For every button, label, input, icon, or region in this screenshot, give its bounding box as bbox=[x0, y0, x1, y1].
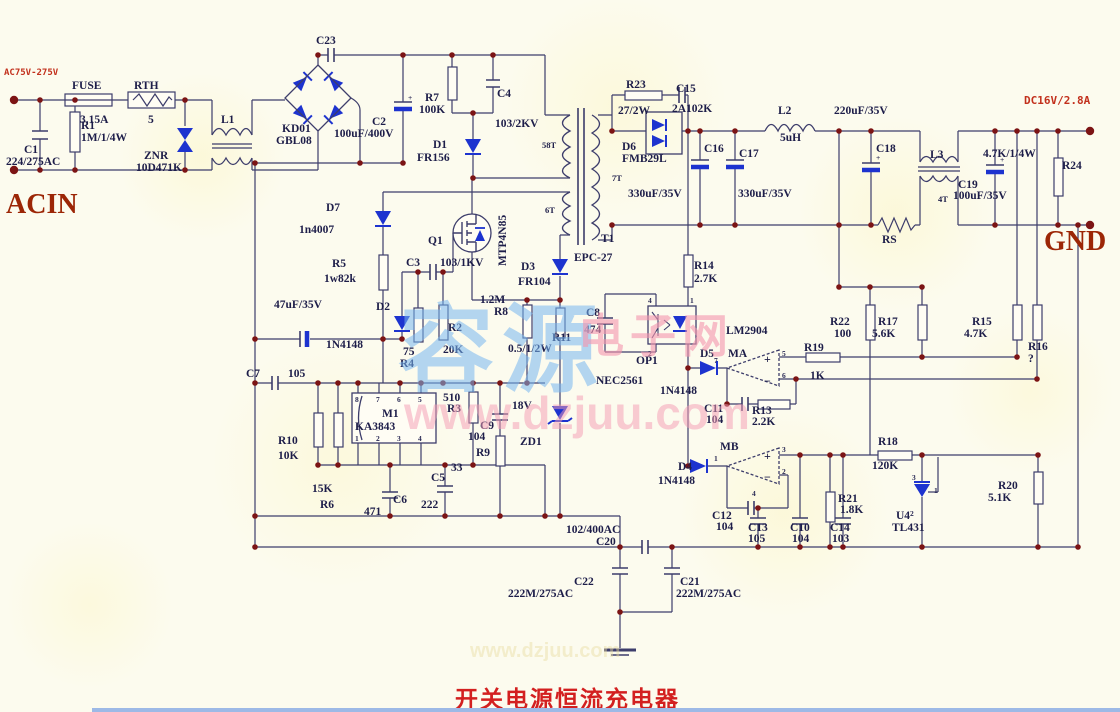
label-gbl08-17: GBL08 bbox=[276, 135, 312, 147]
label-1n4148-32: 1N4148 bbox=[326, 339, 363, 351]
choke-l1 bbox=[212, 129, 252, 165]
junction-dot bbox=[387, 462, 393, 468]
label-7t-49: 7T bbox=[612, 173, 622, 183]
label-lm2904-108: LM2904 bbox=[726, 325, 768, 337]
label-4-157: 4 bbox=[648, 296, 652, 305]
label-c17-86: C17 bbox=[739, 148, 759, 160]
bridge-diode-3 bbox=[293, 105, 312, 124]
bridge-rectifier-kd01 bbox=[285, 65, 351, 131]
label-d5-105: D5 bbox=[700, 348, 714, 360]
junction-dot bbox=[470, 175, 476, 181]
label-ma-107: MA bbox=[728, 348, 748, 360]
inductor-l2 bbox=[765, 125, 815, 132]
label-r23-78: R23 bbox=[626, 79, 646, 91]
junction-dot bbox=[182, 97, 188, 103]
label-1-155: 1 bbox=[714, 454, 718, 463]
resistor-r10 bbox=[314, 413, 323, 447]
junction-dot bbox=[315, 52, 321, 58]
junction-dot bbox=[609, 222, 615, 228]
junction-dot bbox=[697, 222, 703, 228]
label-r2-39: R2 bbox=[448, 322, 462, 334]
resistor-r21 bbox=[826, 492, 835, 522]
label---165: + bbox=[1000, 155, 1004, 164]
label-ac75v-275v-0: AC75V-275V bbox=[4, 68, 59, 78]
junction-dot bbox=[827, 452, 833, 458]
junction-dot bbox=[755, 544, 761, 550]
cap-c3 bbox=[430, 264, 436, 280]
junction-dot bbox=[1034, 376, 1040, 382]
junction-dot bbox=[919, 284, 925, 290]
resistor-r15 bbox=[1013, 305, 1022, 340]
junction-dot bbox=[524, 297, 530, 303]
label-330uf-35v-87: 330uF/35V bbox=[738, 188, 792, 200]
label-5-6k-114: 5.6K bbox=[872, 328, 895, 340]
label-r10-54: R10 bbox=[278, 435, 298, 447]
transformer-t1-secondary-winding bbox=[592, 115, 600, 240]
label-1w82k-29: 1w82k bbox=[324, 273, 357, 285]
label-58t-47: 58T bbox=[542, 140, 557, 150]
transformer-t1-primary-winding bbox=[563, 115, 571, 178]
terminal-dot bbox=[1086, 127, 1094, 135]
label-5-150: 5 bbox=[782, 349, 786, 358]
label-104-127: 104 bbox=[716, 521, 734, 533]
label-r11-43: R11 bbox=[552, 332, 571, 344]
label-znr-12: ZNR bbox=[144, 150, 169, 162]
label-rs-98: RS bbox=[882, 234, 897, 246]
label-r1-10: R1 bbox=[81, 120, 95, 132]
label-kd01-16: KD01 bbox=[282, 123, 311, 135]
junction-dot bbox=[1035, 544, 1041, 550]
label-d6-82: D6 bbox=[622, 141, 636, 153]
junction-dot bbox=[315, 380, 321, 386]
junction-dot bbox=[524, 380, 530, 386]
label-d4-124: D4 bbox=[678, 461, 692, 473]
label-dc16v-2-8a-3: DC16V/2.8A bbox=[1024, 94, 1091, 107]
label-1n4148-106: 1N4148 bbox=[660, 385, 697, 397]
label-3-160: 3 bbox=[912, 473, 916, 482]
junction-dot bbox=[836, 128, 842, 134]
optocoupler-led bbox=[673, 316, 687, 331]
diode-d1 bbox=[465, 139, 481, 154]
label-4-156: 4 bbox=[752, 489, 756, 498]
label-r7-20: R7 bbox=[425, 92, 439, 104]
junction-dot bbox=[252, 380, 258, 386]
label-8-142: 8 bbox=[355, 395, 359, 404]
label-3-148: 3 bbox=[397, 434, 401, 443]
junction-dot bbox=[542, 513, 548, 519]
label-222m-275ac-77: 222M/275AC bbox=[676, 588, 741, 600]
label-105-133: 105 bbox=[748, 533, 766, 545]
label-5-1k-141: 5.1K bbox=[988, 492, 1011, 504]
label-1n4148-125: 1N4148 bbox=[658, 475, 695, 487]
resistor-r9 bbox=[496, 436, 505, 466]
label-fuse-4: FUSE bbox=[72, 80, 102, 92]
label-c2-18: C2 bbox=[372, 116, 386, 128]
junction-dot bbox=[400, 52, 406, 58]
label-6-144: 6 bbox=[397, 395, 401, 404]
label-104-67: 104 bbox=[468, 431, 486, 443]
label-l2-88: L2 bbox=[778, 105, 792, 117]
junction-dot bbox=[617, 609, 623, 615]
label---168: + bbox=[764, 449, 771, 463]
label-100uf-35v-95: 100uF/35V bbox=[953, 190, 1007, 202]
label-epc-27-51: EPC-27 bbox=[574, 252, 613, 264]
label-10k-55: 10K bbox=[278, 450, 299, 462]
label-75-41: 75 bbox=[403, 346, 415, 358]
cap-c1 bbox=[32, 131, 48, 139]
label-u4-138: U4 bbox=[896, 510, 910, 522]
label-c23-15: C23 bbox=[316, 35, 336, 47]
label-c6-60: C6 bbox=[393, 494, 407, 506]
label-c1-8: C1 bbox=[24, 144, 38, 156]
junction-dot bbox=[442, 462, 448, 468]
cap-c7 bbox=[272, 376, 278, 390]
junction-dot bbox=[415, 269, 421, 275]
label-r9-68: R9 bbox=[476, 447, 490, 459]
label-5-7: 5 bbox=[148, 114, 154, 126]
junction-dot bbox=[1075, 544, 1081, 550]
label-3-153: 3 bbox=[782, 445, 786, 454]
label-4-7k-1-4w-96: 4.7K/1/4W bbox=[983, 148, 1036, 160]
label-r14-99: R14 bbox=[694, 260, 714, 272]
cap-c4 bbox=[486, 80, 500, 87]
label-2a102k-81: 2A102K bbox=[672, 103, 712, 115]
junction-dot bbox=[400, 160, 406, 166]
label-t1-50: T1 bbox=[601, 233, 615, 245]
label-r17-113: R17 bbox=[878, 316, 898, 328]
junction-dot bbox=[252, 544, 258, 550]
junction-dot bbox=[868, 222, 874, 228]
label-acin-1: ACIN bbox=[6, 189, 78, 220]
label-2-7k-100: 2.7K bbox=[694, 273, 717, 285]
label-c22-74: C22 bbox=[574, 576, 594, 588]
diode-d3 bbox=[552, 259, 568, 274]
junction-dot bbox=[440, 269, 446, 275]
label-0-5-1-2w-44: 0.5/1/2W bbox=[508, 343, 552, 355]
junction-dot bbox=[840, 544, 846, 550]
cap-c21 bbox=[664, 568, 680, 574]
label-d7-26: D7 bbox=[326, 202, 340, 214]
junction-dot bbox=[836, 222, 842, 228]
junction-dot bbox=[1034, 128, 1040, 134]
junction-dot bbox=[355, 380, 361, 386]
label-r18-128: R18 bbox=[878, 436, 898, 448]
junction-dot bbox=[685, 128, 691, 134]
resistor-r7 bbox=[448, 67, 457, 100]
label-222-63: 222 bbox=[421, 499, 439, 511]
label-zd1-71: ZD1 bbox=[520, 436, 542, 448]
label-1n4007-27: 1n4007 bbox=[299, 224, 334, 236]
bridge-diode-2 bbox=[324, 72, 343, 91]
junction-dot bbox=[497, 513, 503, 519]
component-labels: AC75V-275VACINGNDDC16V/2.8AFUSE3.15ARTH5… bbox=[4, 35, 1106, 600]
label-6-151: 6 bbox=[782, 371, 786, 380]
rectifier-d6-box bbox=[646, 112, 682, 154]
junction-dot bbox=[252, 160, 258, 166]
resistor-r20 bbox=[1034, 472, 1043, 504]
label-fmb29l-83: FMB29L bbox=[622, 153, 667, 165]
resistor-r17 bbox=[918, 305, 927, 340]
label-103-137: 103 bbox=[832, 533, 850, 545]
junction-dot bbox=[732, 128, 738, 134]
label-100uf-400v-19: 100uF/400V bbox=[334, 128, 394, 140]
label-q1-35: Q1 bbox=[428, 235, 443, 247]
diode-d4 bbox=[690, 459, 707, 473]
junction-dot bbox=[557, 513, 563, 519]
label-105-53: 105 bbox=[288, 368, 306, 380]
label-222m-275ac-75: 222M/275AC bbox=[508, 588, 573, 600]
label-100k-21: 100K bbox=[419, 104, 445, 116]
label-104-135: 104 bbox=[792, 533, 810, 545]
label-7-152: 7 bbox=[714, 356, 718, 365]
junction-dot bbox=[797, 452, 803, 458]
junction-dot bbox=[755, 505, 761, 511]
junction-dot bbox=[335, 462, 341, 468]
transformer-t1-core bbox=[578, 108, 584, 245]
label-op1-103: OP1 bbox=[636, 355, 658, 367]
label-15k-56: 15K bbox=[312, 483, 333, 495]
label-2-154: 2 bbox=[782, 467, 786, 476]
junction-dot bbox=[557, 297, 563, 303]
label-m1-58: M1 bbox=[382, 408, 399, 420]
label-102-400ac-72: 102/400AC bbox=[566, 524, 620, 536]
label-1m-1-4w-11: 1M/1/4W bbox=[81, 132, 127, 144]
tl431-u4-symbol bbox=[914, 482, 930, 497]
junction-dot bbox=[732, 222, 738, 228]
junction-dot bbox=[72, 97, 78, 103]
label-18v-70: 18V bbox=[512, 400, 533, 412]
junction-dot bbox=[685, 365, 691, 371]
label-r19-109: R19 bbox=[804, 342, 824, 354]
resistor-r23 bbox=[625, 91, 662, 100]
label-104-120: 104 bbox=[706, 414, 724, 426]
label-20k-40: 20K bbox=[443, 344, 464, 356]
resistor-r6 bbox=[334, 413, 343, 447]
junction-dot bbox=[470, 380, 476, 386]
junction-dot bbox=[315, 462, 321, 468]
label-5uh-89: 5uH bbox=[780, 132, 801, 144]
junction-dot bbox=[992, 222, 998, 228]
label-2-162: 2 bbox=[910, 509, 914, 518]
label-l1-14: L1 bbox=[221, 114, 235, 126]
label-l3-92: L3 bbox=[930, 149, 944, 161]
label-c16-84: C16 bbox=[704, 143, 724, 155]
resistor-r19 bbox=[806, 353, 840, 362]
label-r6-57: R6 bbox=[320, 499, 334, 511]
label---166: + bbox=[764, 352, 771, 366]
junction-dot bbox=[37, 97, 43, 103]
resistor-r8 bbox=[523, 305, 532, 338]
label-r15-115: R15 bbox=[972, 316, 992, 328]
junction-dot bbox=[840, 452, 846, 458]
cap-c23 bbox=[328, 48, 334, 62]
junction-dot bbox=[992, 128, 998, 134]
label---164: + bbox=[876, 153, 880, 162]
label-330uf-35v-85: 330uF/35V bbox=[628, 188, 682, 200]
label-4-149: 4 bbox=[418, 434, 422, 443]
junction-dot bbox=[442, 513, 448, 519]
cap-c12 bbox=[748, 501, 754, 515]
label-mtp4n85-36: MTP4N85 bbox=[497, 215, 509, 266]
junction-dot bbox=[449, 52, 455, 58]
junction-dot bbox=[357, 160, 363, 166]
resistor-r2 bbox=[439, 305, 448, 340]
label-c5-62: C5 bbox=[431, 472, 445, 484]
junction-dot bbox=[252, 513, 258, 519]
label-gnd-2: GND bbox=[1044, 226, 1106, 257]
cap-c11 bbox=[742, 397, 748, 411]
junction-dot bbox=[868, 128, 874, 134]
junction-dot bbox=[72, 167, 78, 173]
junction-dot bbox=[380, 336, 386, 342]
junction-dot bbox=[1014, 128, 1020, 134]
label-d1-24: D1 bbox=[433, 139, 447, 151]
label-ka3843-59: KA3843 bbox=[355, 421, 396, 433]
label-1-146: 1 bbox=[355, 434, 359, 443]
label-r3-65: R3 bbox=[447, 403, 461, 415]
junction-dot bbox=[827, 544, 833, 550]
junction-dot bbox=[1014, 354, 1020, 360]
diode-d7 bbox=[375, 211, 391, 226]
resistor-r3 bbox=[469, 392, 478, 423]
opamp-mb-triangle bbox=[727, 448, 779, 484]
label-c20-73: C20 bbox=[596, 536, 616, 548]
junction-dot bbox=[1055, 128, 1061, 134]
resistor-r4 bbox=[414, 308, 423, 342]
junction-dot bbox=[697, 128, 703, 134]
rectifier-d6-diode-a bbox=[652, 119, 666, 131]
label-1-158: 1 bbox=[690, 296, 694, 305]
label-d3-45: D3 bbox=[521, 261, 535, 273]
junction-dot bbox=[470, 110, 476, 116]
optocoupler-op1-transistor bbox=[652, 312, 670, 338]
label-fr156-25: FR156 bbox=[417, 152, 450, 164]
rectifier-d6-diode-b bbox=[652, 135, 666, 147]
earth-ground-symbol bbox=[604, 650, 636, 655]
junction-dot bbox=[37, 167, 43, 173]
resistor-r18 bbox=[878, 451, 912, 460]
terminal-dot bbox=[10, 96, 18, 104]
label-r16-117: R16 bbox=[1028, 341, 1048, 353]
label-c3-33: C3 bbox=[406, 257, 420, 269]
schematic-canvas: AC75V-275VACINGNDDC16V/2.8AFUSE3.15ARTH5… bbox=[0, 0, 1120, 712]
label-33-69: 33 bbox=[451, 462, 463, 474]
label---163: + bbox=[408, 93, 412, 102]
label-c15-80: C15 bbox=[676, 83, 696, 95]
junction-dot bbox=[440, 380, 446, 386]
resistor-r14 bbox=[684, 255, 693, 287]
junction-dot bbox=[797, 544, 803, 550]
label-c7-52: C7 bbox=[246, 368, 260, 380]
label-r5-28: R5 bbox=[332, 258, 346, 270]
label-120k-129: 120K bbox=[872, 460, 898, 472]
label-220uf-35v-90: 220uF/35V bbox=[834, 105, 888, 117]
junction-dot bbox=[1035, 452, 1041, 458]
label-r20-140: R20 bbox=[998, 480, 1018, 492]
label-27-2w-79: 27/2W bbox=[618, 105, 650, 117]
resistor-r5 bbox=[379, 255, 388, 290]
label-4-7k-116: 4.7K bbox=[964, 328, 987, 340]
cap-c22 bbox=[612, 568, 628, 574]
label-2-147: 2 bbox=[376, 434, 380, 443]
junction-dot bbox=[919, 354, 925, 360]
label-1-8k-131: 1.8K bbox=[840, 504, 863, 516]
label-6t-48: 6T bbox=[545, 205, 555, 215]
junction-dot bbox=[335, 380, 341, 386]
label-nec2561-104: NEC2561 bbox=[596, 375, 644, 387]
varistor-znr bbox=[177, 128, 193, 152]
label-c21-76: C21 bbox=[680, 576, 700, 588]
junction-dot bbox=[418, 380, 424, 386]
label-2-2k-122: 2.2K bbox=[752, 416, 775, 428]
junction-dot bbox=[387, 513, 393, 519]
sense-resistor-rs bbox=[878, 218, 915, 232]
label-1-161: 1 bbox=[934, 486, 938, 495]
label-1k-110: 1K bbox=[810, 370, 825, 382]
diode-d2 bbox=[394, 316, 410, 331]
label---169: − bbox=[764, 470, 771, 484]
label-471-61: 471 bbox=[364, 506, 382, 518]
label-7-143: 7 bbox=[376, 395, 380, 404]
label-103-1kv-34: 103/1KV bbox=[440, 257, 484, 269]
label-103-2kv-23: 103/2KV bbox=[495, 118, 539, 130]
label-r24-97: R24 bbox=[1062, 160, 1082, 172]
label-474-102: 474 bbox=[584, 324, 602, 336]
label-r4-42: R4 bbox=[400, 358, 414, 370]
resistor-r16 bbox=[1033, 305, 1042, 340]
cap-c5 bbox=[437, 486, 453, 492]
label-r22-111: R22 bbox=[830, 316, 850, 328]
label-r8-38: R8 bbox=[494, 306, 508, 318]
label-47uf-35v-30: 47uF/35V bbox=[274, 299, 323, 311]
junction-dot bbox=[470, 462, 476, 468]
junction-dot bbox=[919, 452, 925, 458]
junction-dot bbox=[836, 284, 842, 290]
label-c8-101: C8 bbox=[586, 307, 600, 319]
label-tl431-139: TL431 bbox=[892, 522, 925, 534]
junction-dot bbox=[497, 380, 503, 386]
bottom-edge-strip bbox=[92, 708, 1120, 712]
schematic-page: AC75V-275VACINGNDDC16V/2.8AFUSE3.15ARTH5… bbox=[0, 0, 1120, 712]
cap-c20 bbox=[642, 540, 648, 554]
junction-dot bbox=[490, 52, 496, 58]
junction-dot bbox=[867, 284, 873, 290]
label-rth-6: RTH bbox=[134, 80, 159, 92]
junction-dot bbox=[919, 544, 925, 550]
label-4t-93: 4T bbox=[938, 194, 948, 204]
junction-dot bbox=[617, 544, 623, 550]
label---167: − bbox=[764, 374, 771, 388]
transformer-t1-aux-winding bbox=[563, 192, 571, 235]
junction-dot bbox=[609, 128, 615, 134]
junction-dot bbox=[793, 376, 799, 382]
label-mb-123: MB bbox=[720, 441, 739, 453]
label-10d471k-13: 10D471K bbox=[136, 162, 182, 174]
label-2-159: 2 bbox=[648, 349, 652, 358]
resistor-r1 bbox=[70, 112, 80, 152]
junction-dot bbox=[252, 336, 258, 342]
label-1-2m-37: 1.2M bbox=[480, 294, 505, 306]
junction-dot bbox=[399, 336, 405, 342]
cap-c9 bbox=[492, 414, 508, 420]
junction-dot bbox=[397, 380, 403, 386]
label---118: ? bbox=[1028, 353, 1034, 365]
label-fr104-46: FR104 bbox=[518, 276, 551, 288]
junction-dot bbox=[724, 401, 730, 407]
label-224-275ac-9: 224/275AC bbox=[6, 156, 60, 168]
label-d2-31: D2 bbox=[376, 301, 390, 313]
label-c4-22: C4 bbox=[497, 88, 511, 100]
